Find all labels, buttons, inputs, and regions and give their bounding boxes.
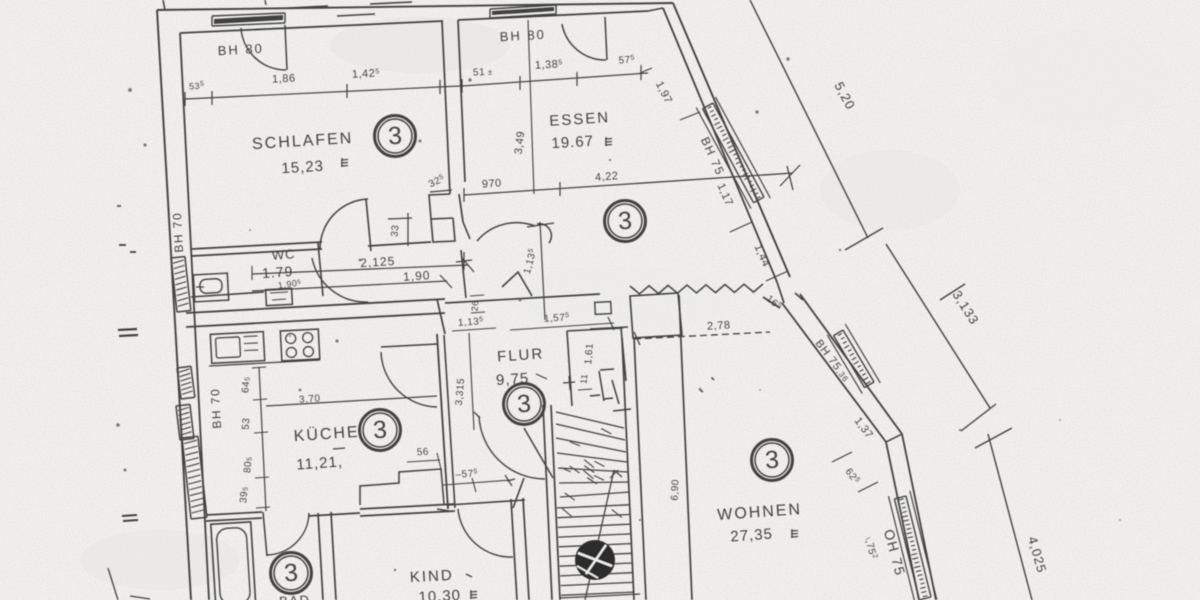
svg-text:27,35: 27,35 xyxy=(730,526,774,546)
svg-text:15,23: 15,23 xyxy=(281,158,325,178)
svg-text:1,90: 1,90 xyxy=(403,268,431,284)
svg-text:53: 53 xyxy=(241,417,253,430)
svg-text:10,30: 10,30 xyxy=(418,587,461,600)
svg-text:6,90: 6,90 xyxy=(669,479,681,501)
svg-text:3: 3 xyxy=(283,559,299,588)
svg-text:2,78: 2,78 xyxy=(707,319,731,332)
svg-text:970: 970 xyxy=(481,177,502,190)
svg-text:BH 80: BH 80 xyxy=(499,27,546,44)
svg-text:3: 3 xyxy=(617,207,633,236)
svg-text:BAD: BAD xyxy=(279,592,311,600)
svg-text:3: 3 xyxy=(764,446,780,475)
svg-text:KIND: KIND xyxy=(409,567,454,586)
svg-text:4,22: 4,22 xyxy=(595,170,619,184)
svg-text:11,21,: 11,21, xyxy=(296,453,344,473)
svg-text:33: 33 xyxy=(390,224,402,237)
svg-text:2,125: 2,125 xyxy=(360,254,396,270)
svg-text:3: 3 xyxy=(387,122,403,151)
svg-text:BH 70: BH 70 xyxy=(170,211,186,253)
svg-text:FLUR: FLUR xyxy=(497,345,545,365)
svg-text:3: 3 xyxy=(516,390,532,419)
svg-text:WC: WC xyxy=(271,246,296,263)
svg-text:3,70: 3,70 xyxy=(299,393,321,405)
svg-text:3: 3 xyxy=(372,416,388,445)
svg-text:BH 70: BH 70 xyxy=(208,387,224,429)
svg-text:BH 80: BH 80 xyxy=(217,41,264,58)
svg-text:1,61: 1,61 xyxy=(583,343,596,365)
svg-text:11: 11 xyxy=(579,373,590,384)
svg-text:56: 56 xyxy=(416,447,429,459)
svg-text:1,86: 1,86 xyxy=(272,72,296,85)
svg-text:19.67: 19.67 xyxy=(551,133,595,153)
